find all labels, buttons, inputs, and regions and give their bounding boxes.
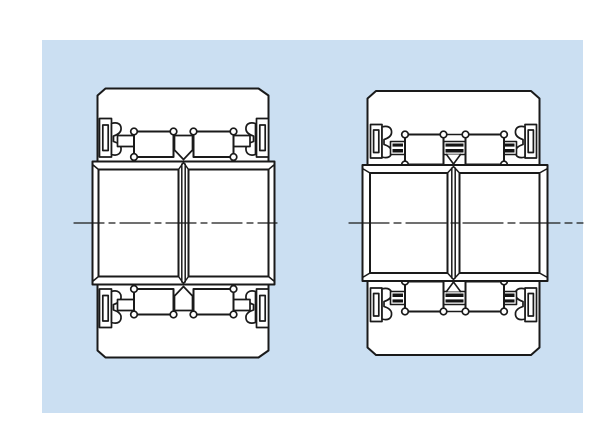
cage-pin-highlight xyxy=(504,147,515,149)
bearing-cross-section-left xyxy=(74,89,277,358)
cage-bar xyxy=(118,136,135,147)
roller xyxy=(194,132,234,158)
seal-pocket-groove xyxy=(374,130,379,153)
seal-pocket-groove xyxy=(260,125,265,151)
bearing-half xyxy=(98,89,269,162)
bearing-diagram xyxy=(0,0,608,446)
roller xyxy=(134,132,174,158)
page xyxy=(0,0,608,446)
roller xyxy=(405,135,444,165)
cage-pin-highlight xyxy=(446,147,464,149)
bearing-half-mirror xyxy=(98,285,269,358)
roller xyxy=(466,135,505,165)
cage-bar xyxy=(234,136,251,147)
seal-pocket-groove xyxy=(103,125,108,151)
bearing-half-mirror xyxy=(368,278,540,355)
seal-pocket-groove xyxy=(528,130,533,153)
bearing-half xyxy=(368,91,540,168)
cage-pin-highlight xyxy=(393,147,404,149)
